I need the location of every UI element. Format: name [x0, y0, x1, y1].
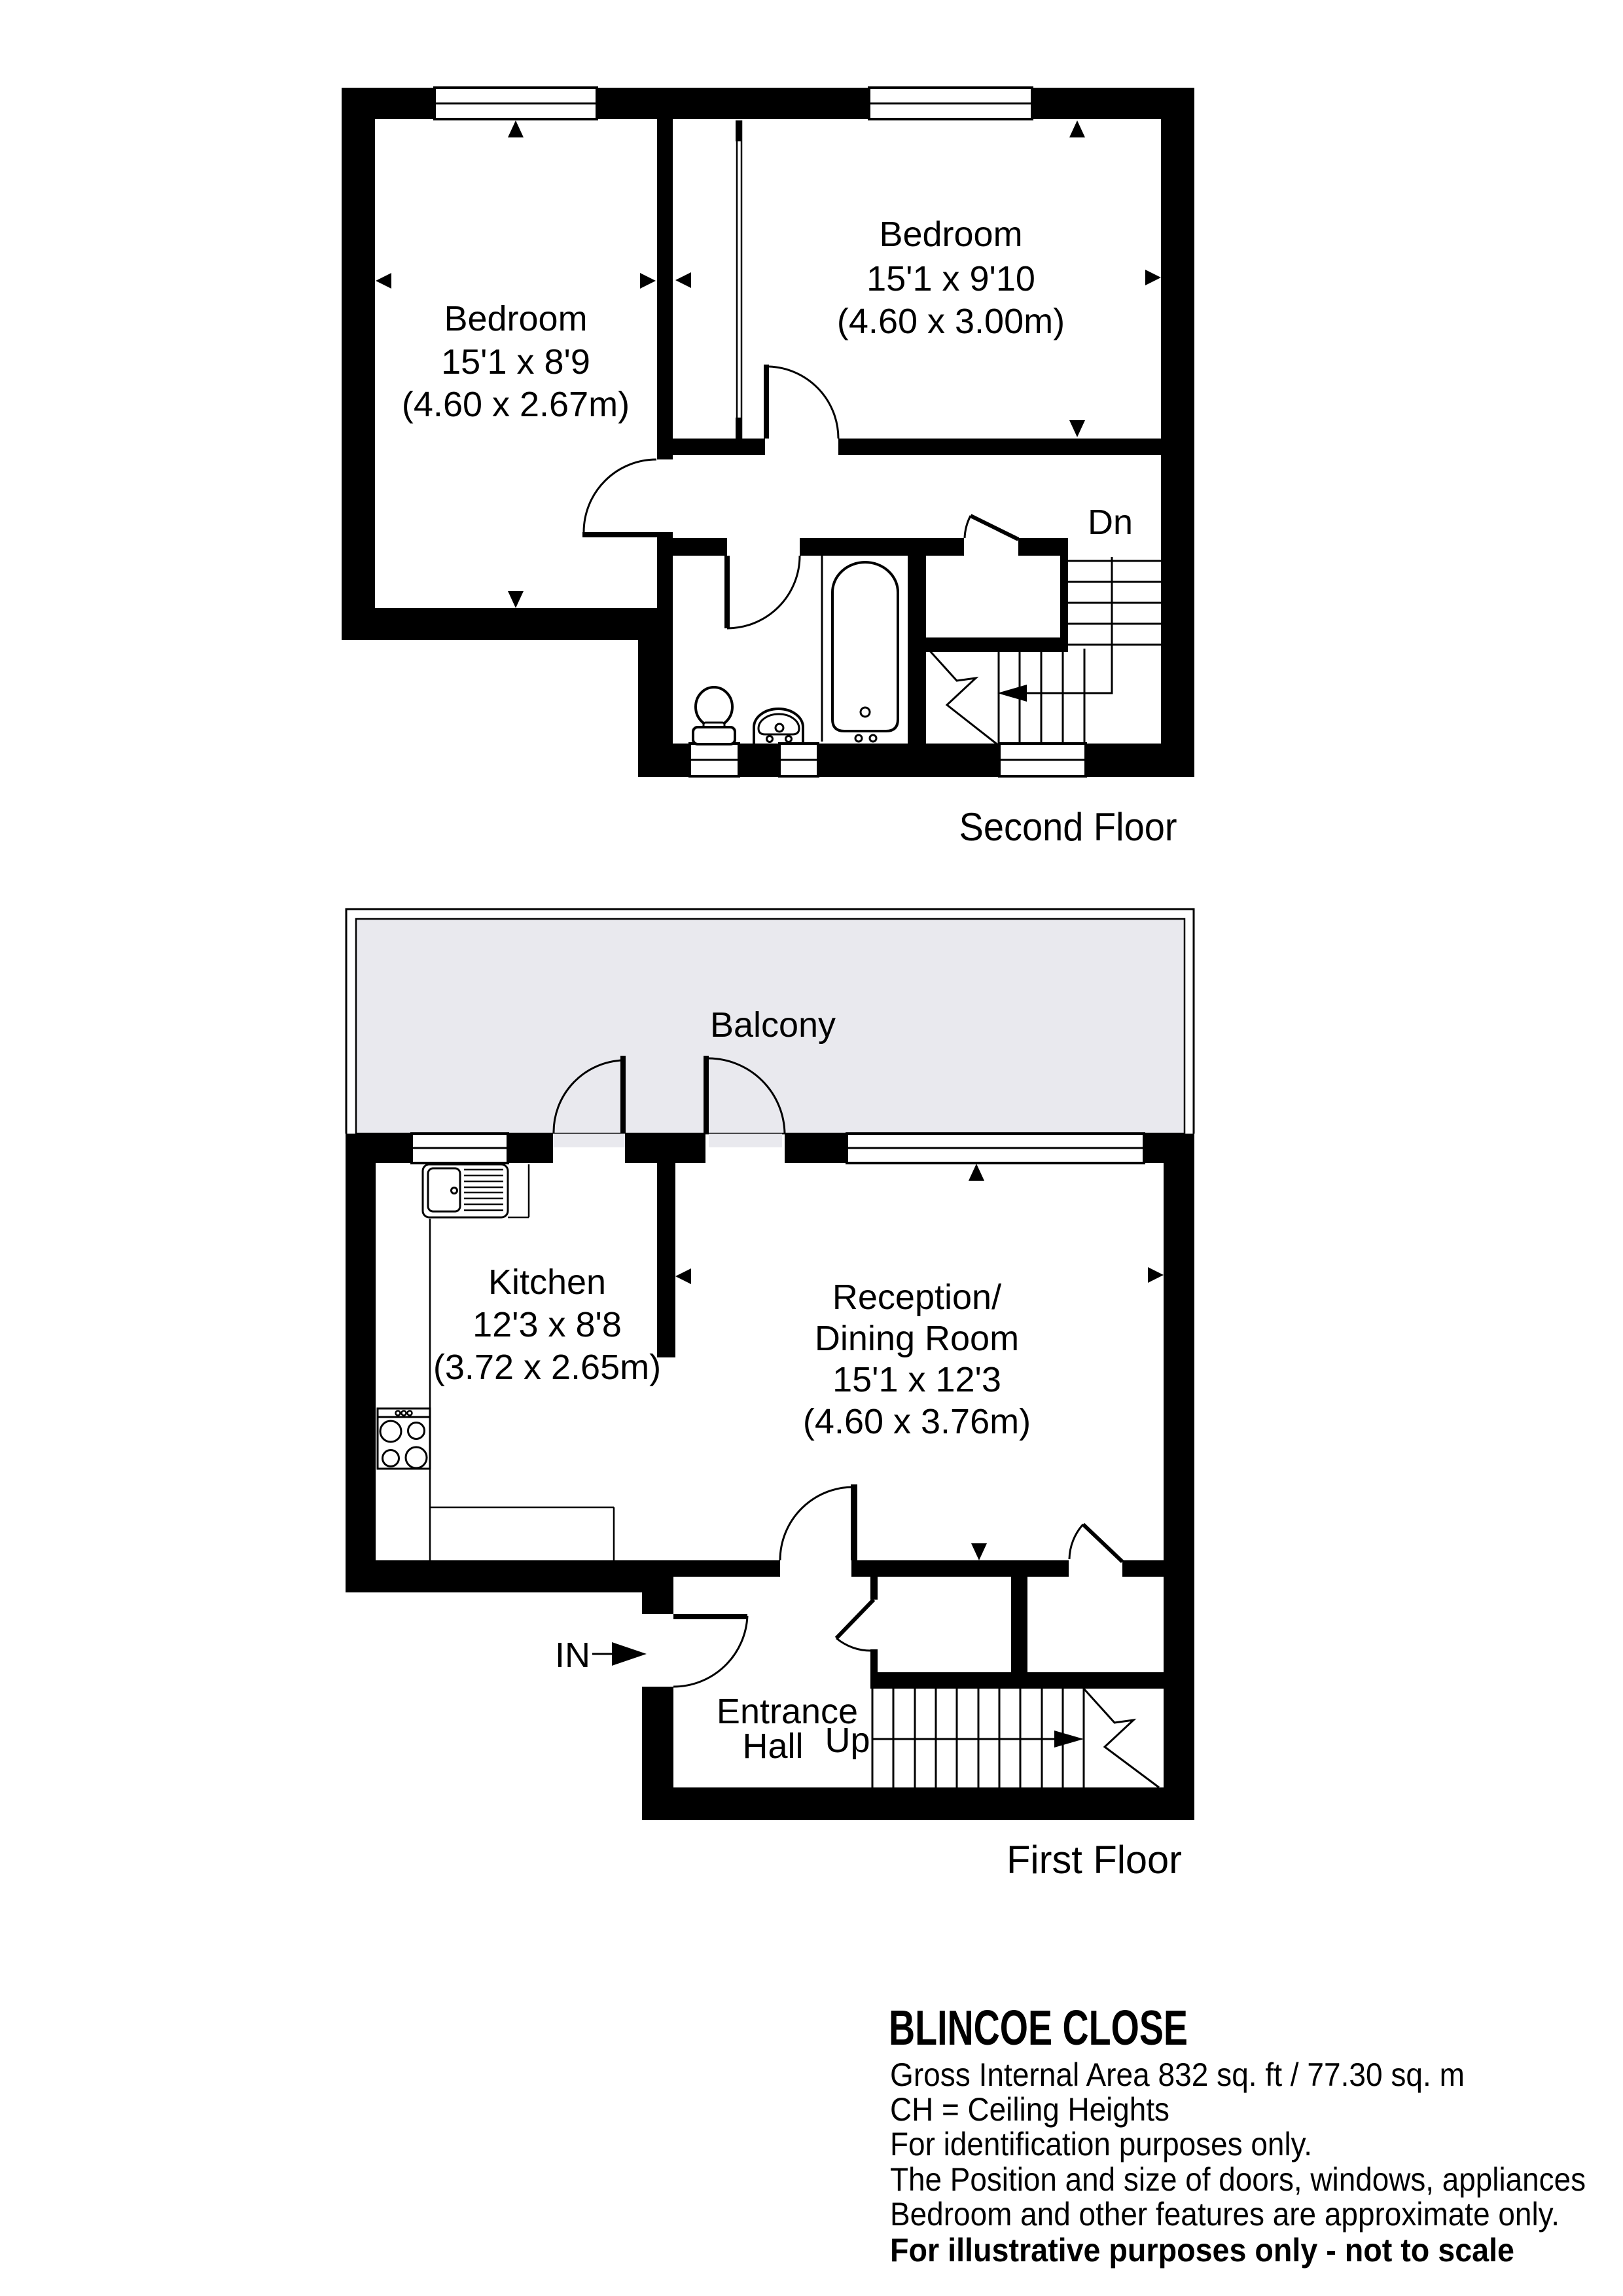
svg-text:15'1 x 12'3: 15'1 x 12'3 — [832, 1360, 1001, 1399]
svg-text:15'1 x 8'9: 15'1 x 8'9 — [441, 342, 590, 382]
svg-text:BLINCOE CLOSE: BLINCOE CLOSE — [889, 2000, 1188, 2055]
svg-text:Hall: Hall — [742, 1727, 803, 1766]
svg-text:(4.60 x 3.76m): (4.60 x 3.76m) — [803, 1402, 1031, 1441]
svg-text:Balcony: Balcony — [710, 1005, 836, 1045]
svg-text:(4.60 x 2.67m): (4.60 x 2.67m) — [402, 385, 630, 424]
svg-text:Bedroom: Bedroom — [879, 215, 1022, 254]
svg-text:Gross Internal Area 832 sq. ft: Gross Internal Area 832 sq. ft / 77.30 s… — [890, 2056, 1465, 2093]
svg-text:Bedroom: Bedroom — [444, 299, 587, 338]
svg-text:CH = Ceiling Heights: CH = Ceiling Heights — [890, 2091, 1169, 2128]
svg-text:Bedroom and other features are: Bedroom and other features are approxima… — [890, 2196, 1560, 2233]
svg-text:15'1 x 9'10: 15'1 x 9'10 — [866, 259, 1035, 298]
svg-text:Kitchen: Kitchen — [488, 1263, 606, 1302]
svg-text:For identification purposes on: For identification purposes only. — [890, 2126, 1312, 2162]
svg-text:IN: IN — [555, 1636, 590, 1675]
svg-text:First Floor: First Floor — [1007, 1838, 1182, 1882]
svg-text:Dn: Dn — [1088, 503, 1133, 542]
svg-text:12'3 x 8'8: 12'3 x 8'8 — [473, 1305, 622, 1344]
svg-text:Reception/: Reception/ — [832, 1278, 1001, 1317]
svg-text:For illustrative purposes only: For illustrative purposes only - not to … — [890, 2232, 1514, 2269]
svg-text:Second Floor: Second Floor — [959, 805, 1177, 849]
svg-text:Dining Room: Dining Room — [815, 1319, 1019, 1358]
svg-text:(3.72 x 2.65m): (3.72 x 2.65m) — [433, 1348, 661, 1387]
svg-text:(4.60 x 3.00m): (4.60 x 3.00m) — [837, 302, 1065, 341]
svg-text:The Position and size of doors: The Position and size of doors, windows,… — [890, 2161, 1586, 2198]
svg-text:Up: Up — [825, 1721, 870, 1760]
